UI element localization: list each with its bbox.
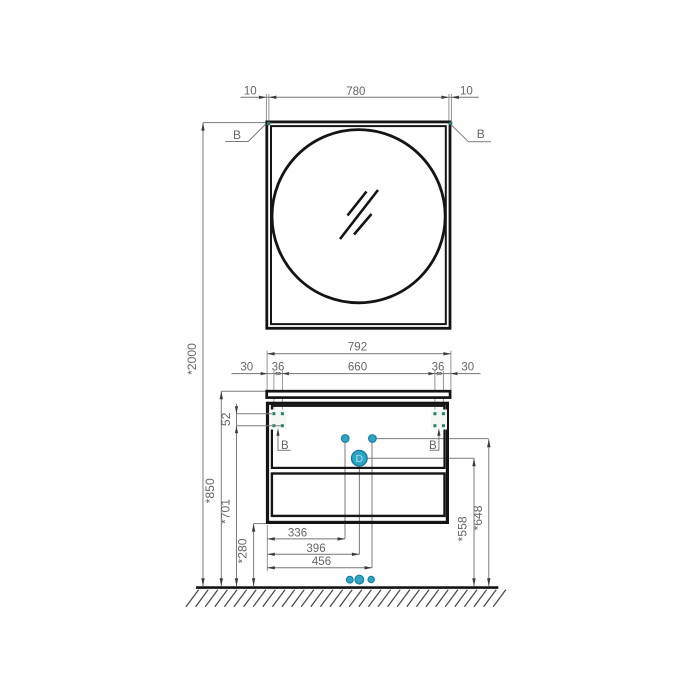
svg-text:*648: *648 <box>471 505 485 530</box>
svg-text:30: 30 <box>461 361 474 373</box>
svg-text:396: 396 <box>306 543 325 555</box>
svg-text:780: 780 <box>346 86 365 98</box>
svg-text:B: B <box>429 440 437 452</box>
svg-text:10: 10 <box>460 86 473 98</box>
svg-text:*701: *701 <box>219 499 233 524</box>
svg-text:36: 36 <box>272 361 285 373</box>
svg-text:B: B <box>281 440 289 452</box>
svg-text:10: 10 <box>244 86 257 98</box>
svg-text:36: 36 <box>432 361 445 373</box>
svg-text:336: 336 <box>288 527 307 539</box>
svg-text:792: 792 <box>348 342 367 354</box>
svg-text:B: B <box>477 127 485 141</box>
svg-text:456: 456 <box>312 556 331 568</box>
svg-text:660: 660 <box>348 361 367 373</box>
svg-text:*2000: *2000 <box>185 343 199 375</box>
svg-text:*280: *280 <box>235 538 249 563</box>
svg-text:*558: *558 <box>455 516 469 541</box>
svg-text:52: 52 <box>219 412 233 426</box>
svg-text:30: 30 <box>240 361 253 373</box>
svg-text:*850: *850 <box>203 478 217 503</box>
svg-text:D: D <box>356 453 364 465</box>
svg-text:B: B <box>233 128 241 142</box>
